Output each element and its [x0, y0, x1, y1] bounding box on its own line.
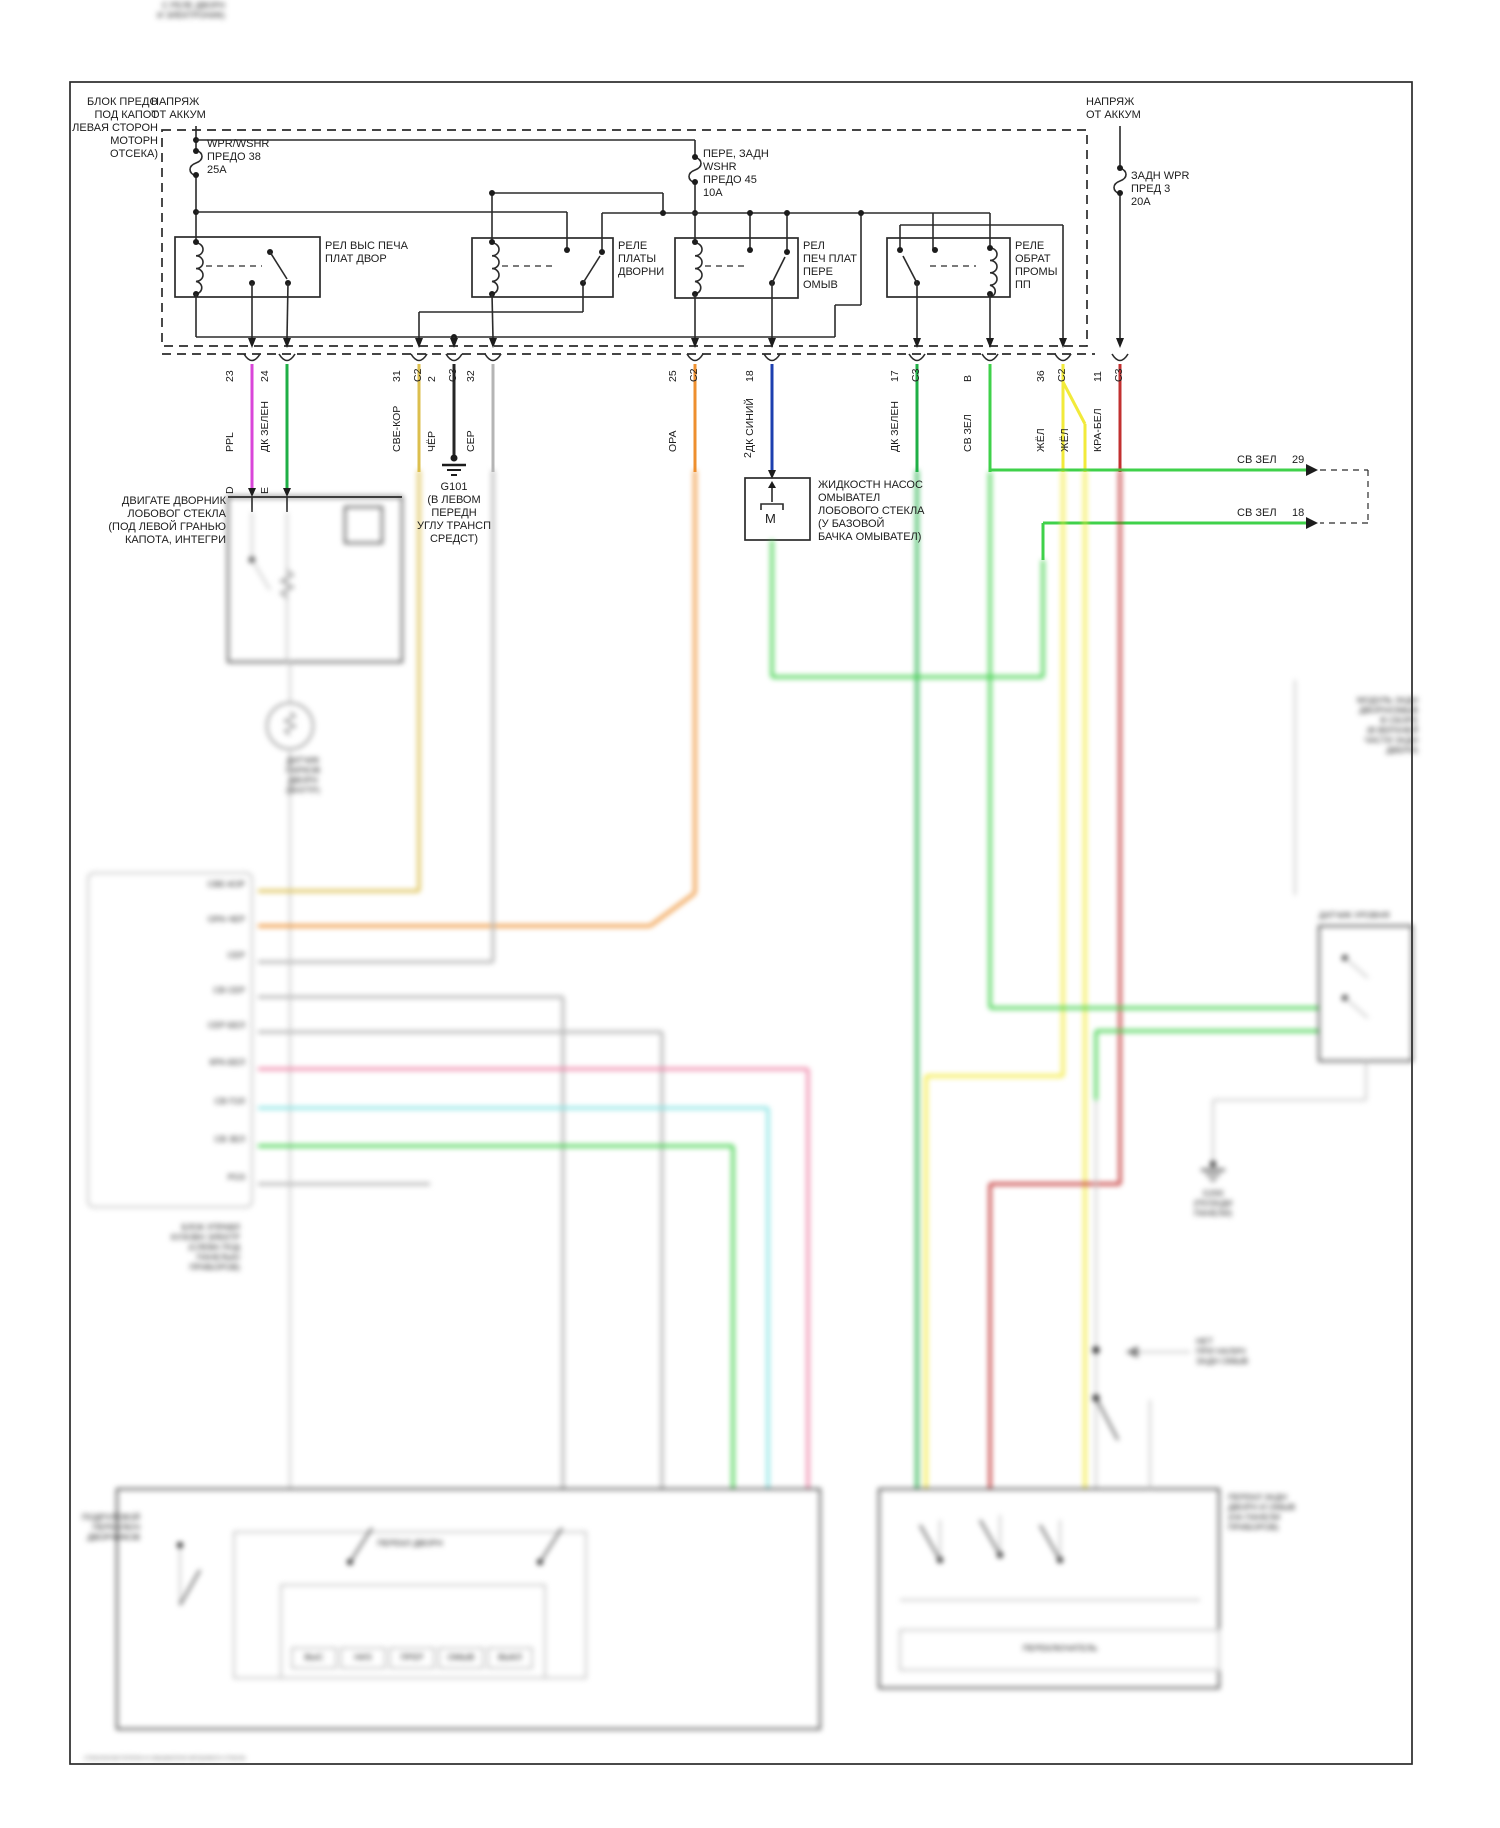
wire-color-label: ДК ЗЕЛЕН [889, 401, 901, 452]
battery-feed-left-label: НАПРЯЖ ОТ АККУМ [151, 96, 251, 122]
wire-color-label: ЖЁЛ [1035, 428, 1047, 452]
pump-pin-2: 2 [742, 452, 754, 458]
inner-switch-label: ПЕРЕКЛ ДВОРН [330, 1538, 490, 1548]
rear-inner-label: ПЕРЕКЛЮЧАТЕЛЬ [980, 1643, 1140, 1653]
ground-g200-label: G200 (ПОЗАДИ ПАНЕЛИ) [1168, 1188, 1258, 1218]
park-sensor-label: ДАТЧИК ПАРКОВ ДВОРН (ВНУТР) [258, 755, 348, 795]
pin-connector: C2 [412, 369, 424, 382]
bcm-label: БЛОК УПРАВЛ КУЗОВН ЭЛЕКТР (СЛЕВА ПОД ПАН… [100, 1222, 240, 1272]
level-sensor-label: ДАТЧИК УРОВНЯ [1319, 910, 1429, 920]
pin-connector: C2 [1056, 369, 1068, 382]
motor-pin-e: Е [259, 487, 271, 494]
pin-connector: C3 [910, 369, 922, 382]
connector-row-label: ОРА-ЧЕР [140, 914, 245, 924]
pin-number: 2 [426, 376, 438, 382]
relay4-label: РЕЛЕ ОБРАТ ПРОМЫ ПП [1015, 240, 1095, 292]
wire-color-label: ОРА [667, 431, 679, 452]
pin-number: 18 [744, 370, 756, 382]
fuse2-label: ПЕРЕ, ЗАДН WSHR ПРЕДО 45 10А [703, 148, 803, 200]
relay2-label: РЕЛЕ ПЛАТЫ ДВОРНИ [618, 240, 708, 279]
connector-row-label: СВ ЗЕЛ [140, 1134, 245, 1144]
second-yellow-label: ЖЁЛ [1059, 428, 1071, 452]
mode-box-label: НИЗ [341, 1652, 385, 1662]
pump-motor-letter: M [765, 512, 785, 525]
mode-box-label: ПРЕР [390, 1652, 434, 1662]
mode-box-label: ВЫКЛ [488, 1652, 532, 1662]
connector-row-label: РОЗ [140, 1172, 245, 1182]
pin-number: В [962, 375, 974, 382]
connector-row-label: СВ ГОЛ [140, 1096, 245, 1106]
motor-pin-d: D [224, 486, 236, 494]
pin-number: 31 [391, 370, 403, 382]
pin-connector: C3 [447, 369, 459, 382]
fuse3-label: ЗАДН WPR ПРЕД 3 20А [1131, 170, 1231, 209]
relay3-label: РЕЛ ПЕЧ ПЛАТ ПЕРЕ ОМЫВ [803, 240, 893, 292]
wire-color-label: ЧЁР [426, 431, 438, 452]
rear-switch-label: ПЕРЕКЛ ЗАДН ДВОРН И ОМЫВ (НА ПАНЕЛИ ПРИБ… [1228, 1492, 1348, 1532]
wiper-motor-label: ДВИГАТЕ ДВОРНИК ЛОБОВОГ СТЕКЛА (ПОД ЛЕВО… [100, 495, 226, 547]
offpage-18-color: СВ ЗЕЛ [1237, 507, 1287, 520]
fuse1-label: WPR/WSHR ПРЕДО 38 25А [207, 138, 307, 177]
blurred-lower-diagram: С РЕЛЕ ДВОРН И ЭЛЕКТРОНИК) ДАТЧИК ПАРКОВ… [0, 0, 1500, 1828]
wire-color-label: СЕР [465, 430, 477, 452]
pin-number: 25 [667, 370, 679, 382]
wire-color-label: СВЕ-КОР [391, 406, 403, 452]
fuse-block-label: БЛОК ПРЕДО ПОД КАПОТ ЛЕВАЯ СТОРОН МОТОРН… [48, 96, 158, 161]
offpage-18-num: 18 [1292, 507, 1316, 520]
washer-pump-label: ЖИДКОСТН НАСОС ОМЫВАТЕЛ ЛОБОВОГО СТЕКЛА … [818, 479, 938, 544]
wire-color-label: КРА-БЕЛ [1092, 408, 1104, 452]
connector-row-label: КРА-БЕЛ [140, 1057, 245, 1067]
stalk-label: ПОДРУЛЕВОЙ ПЕРЕКЛЮЧ ДВОРНИКОВ [30, 1512, 140, 1542]
pin-connector: C3 [1113, 369, 1125, 382]
offpage-29-color: СВ ЗЕЛ [1237, 454, 1287, 467]
pin-number: 11 [1092, 371, 1104, 382]
connector-row-label: СВ СЕР [140, 985, 245, 995]
relay1-label: РЕЛ ВЫС ПЕЧА ПЛАТ ДВОР [325, 240, 435, 266]
mode-box-label: ОМЫВ [439, 1652, 483, 1662]
footer-note: стеклоочистители-и-омыватели-ветрового-с… [84, 1752, 484, 1765]
wiring-diagram-page: С РЕЛЕ ДВОРН И ЭЛЕКТРОНИК) ДАТЧИК ПАРКОВ… [0, 0, 1500, 1828]
rear-module-label: МОДУЛЬ ЗАДН ДВОРН/ОМЫВ В СБОРЕ (В ВЕРХНЕ… [1310, 695, 1418, 755]
note-no-washer: НЕТ ПРИ НАЛИЧ ЗАДН ОМЫВ [1196, 1336, 1296, 1366]
pin-number: 23 [224, 370, 236, 382]
wire-color-label: СВ ЗЕЛ [962, 414, 974, 452]
wire-color-label: ДК ЗЕЛЕН [259, 401, 271, 452]
battery-feed-right-label: НАПРЯЖ ОТ АККУМ [1086, 96, 1186, 122]
pin-number: 32 [465, 370, 477, 382]
connector-row-label: СЕР [140, 950, 245, 960]
offpage-29-num: 29 [1292, 454, 1316, 467]
pin-number: 36 [1035, 370, 1047, 382]
pin-connector: C2 [688, 369, 700, 382]
pin-number: 24 [259, 370, 271, 382]
mode-box-label: ВЫС [292, 1652, 336, 1662]
pin-number: 17 [889, 370, 901, 382]
wire-color-label: ДК СИНИЙ [744, 398, 756, 452]
ground-g101-label: G101 (В ЛЕВОМ ПЕРЕДН УГЛУ ТРАНСП СРЕДСТ) [404, 481, 504, 546]
connector-row-label: СЕР-БЕЛ [140, 1020, 245, 1030]
connector-row-label: СВЕ-КОР [140, 879, 245, 889]
motor-label-extra: С РЕЛЕ ДВОРН И ЭЛЕКТРОНИК) [115, 0, 225, 20]
wire-color-label: PPL [224, 432, 236, 452]
